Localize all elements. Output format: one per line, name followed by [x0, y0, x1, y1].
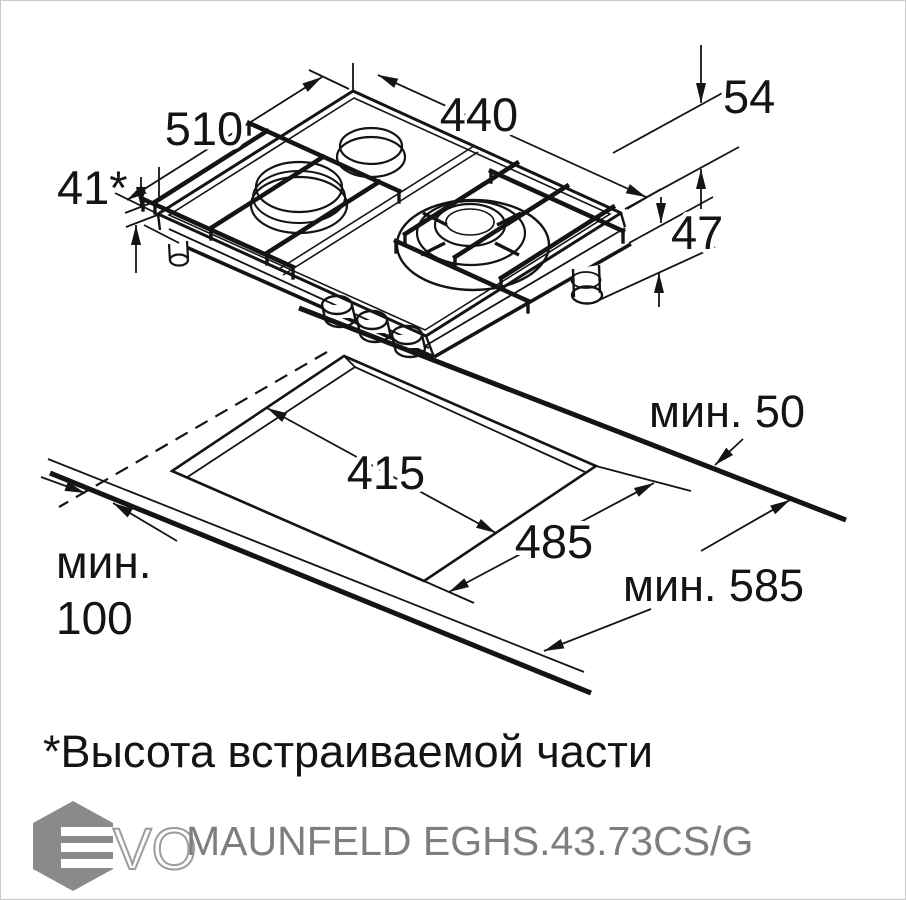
evo-logo-text: VO [113, 817, 197, 882]
worktop-cutout-drawing: 415 485 мин. 50 мин. 585 мин. 100 [41, 308, 846, 693]
hob-foot-left [169, 241, 188, 266]
dim-min585-label: мин. 585 [623, 560, 804, 611]
dimension-415: 415 [267, 408, 496, 533]
dim-415-label: 415 [347, 446, 425, 499]
hob-isometric-drawing: 510 440 54 47 [57, 45, 775, 357]
dim-485-label: 485 [515, 515, 593, 568]
model-text: MAUNFELD EGHS.43.73CS/G [186, 818, 753, 864]
control-knobs [322, 296, 425, 357]
installation-diagram-page: 510 440 54 47 [0, 0, 906, 900]
dim-min50-label: мин. 50 [649, 386, 805, 437]
dim-54-label: 54 [723, 70, 775, 123]
dimension-54: 54 [613, 45, 775, 209]
dimension-440: 440 [353, 63, 661, 209]
hob-foot-right [572, 265, 603, 304]
dim-510-label: 510 [165, 102, 243, 155]
footer: VO MAUNFELD EGHS.43.73CS/G [33, 801, 753, 891]
dim-440-label: 440 [440, 88, 518, 141]
dim-41-label: 41* [57, 161, 128, 214]
dim-min100-label-line1: мин. [56, 536, 152, 588]
dimension-510: 510 [115, 70, 349, 212]
evo-logo: VO [33, 801, 197, 891]
diagram-canvas: 510 440 54 47 [1, 1, 905, 899]
wall-dashed-line [59, 352, 327, 507]
dim-min100-label-line2: 100 [56, 592, 133, 644]
dim-47-label: 47 [671, 206, 723, 259]
footnote-text: *Высота встраиваемой части [43, 726, 653, 777]
